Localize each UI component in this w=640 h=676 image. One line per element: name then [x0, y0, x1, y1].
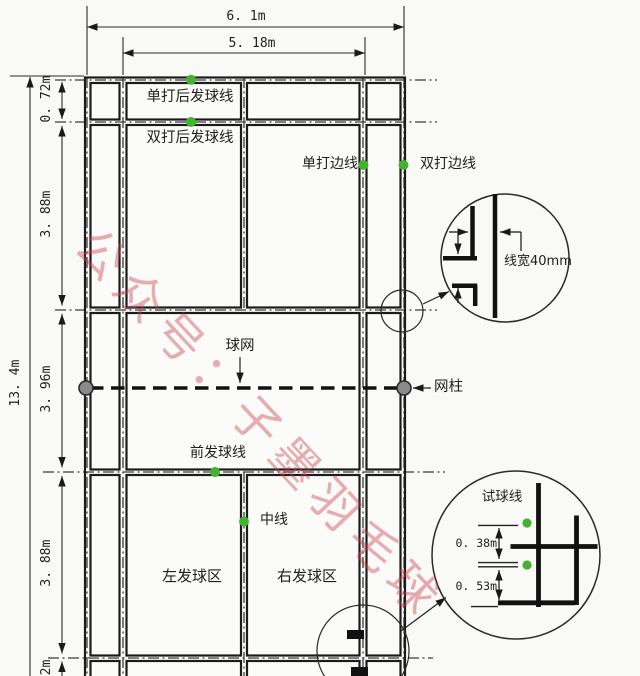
dim-singles-width: 5. 18m — [192, 37, 312, 51]
dim-back-alley-bottom: 0. 72m — [40, 648, 54, 676]
dim-test-line-upper: 0. 38m — [452, 537, 497, 550]
label-singles-sideline: 单打边线 — [285, 157, 375, 172]
badminton-court-diagram: 6. 1m 5. 18m 0. 72m 3. 88m 3. 96m 3. 88m… — [0, 0, 640, 676]
label-left-service-court: 左发球区 — [147, 568, 237, 585]
label-singles-long-service-line: 单打后发球线 — [130, 90, 250, 106]
dim-court-width: 6. 1m — [186, 10, 306, 24]
dim-back-alley-top: 0. 72m — [40, 64, 54, 134]
net-post-left-icon — [79, 381, 93, 395]
label-test-line: 试球线 — [467, 490, 537, 505]
dim-back-court-top: 3. 88m — [40, 179, 54, 249]
net-post-right-icon — [397, 381, 411, 395]
label-line-width-40mm: 线宽40mm — [504, 255, 588, 269]
label-net-post: 网柱 — [434, 380, 494, 396]
label-doubles-sideline: 双打边线 — [413, 157, 483, 172]
callout1-leader-arrow — [423, 292, 449, 305]
label-right-service-court: 右发球区 — [262, 568, 352, 585]
label-doubles-long-service-line: 双打后发球线 — [130, 131, 250, 147]
source-circle-line-width — [381, 290, 423, 332]
dim-back-court-bottom: 3. 88m — [40, 528, 54, 598]
dim-mid-section: 3. 96m — [40, 354, 54, 424]
dim-court-length: 13. 4m — [9, 348, 23, 418]
